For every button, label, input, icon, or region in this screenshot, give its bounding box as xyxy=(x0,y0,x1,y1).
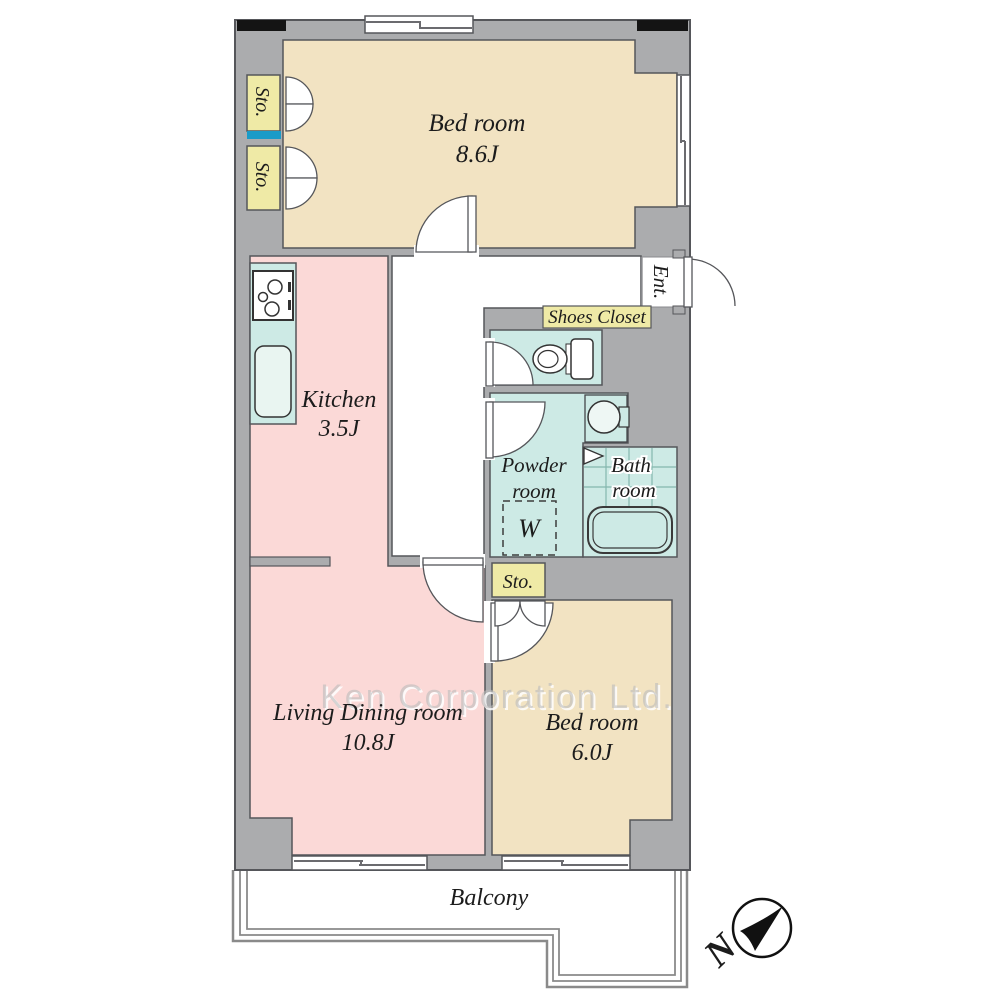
label-bedroom1-name: Bed room xyxy=(429,110,526,137)
label-powder-line1: Powder xyxy=(500,453,567,477)
label-bedroom1-size: 8.6J xyxy=(456,141,500,168)
label-entrance: Ent. xyxy=(649,264,673,299)
toilet-tank xyxy=(571,339,593,379)
compass: N xyxy=(695,899,791,976)
pillar-top-left xyxy=(237,20,286,31)
label-storage3: Sto. xyxy=(503,571,534,593)
label-storage2: Sto. xyxy=(251,162,273,193)
door-leaf-bedroom1 xyxy=(468,196,476,252)
door-leaf-entrance xyxy=(684,257,692,307)
pillar-top-right xyxy=(637,20,688,31)
stove-grill xyxy=(288,300,291,310)
stove-grill xyxy=(288,282,291,292)
sink-icon xyxy=(255,346,291,417)
entrance-jamb-bottom xyxy=(673,306,685,314)
floor-plan: Ken Corporation Ltd. Ken Corporation Ltd… xyxy=(0,0,1000,1000)
label-living-name: Living Dining room xyxy=(272,700,463,726)
floor-plan-canvas: Ken Corporation Ltd. Ken Corporation Ltd… xyxy=(0,0,1000,1000)
door-swing-entrance xyxy=(688,259,735,306)
door-leaf-toilet xyxy=(486,342,493,386)
label-bath-line2: room xyxy=(612,478,656,502)
closet-shelf-blue xyxy=(247,131,281,139)
label-kitchen-name: Kitchen xyxy=(301,387,377,413)
window-bedroom2 xyxy=(502,856,630,870)
label-storage1: Sto. xyxy=(251,87,273,118)
partition-stub xyxy=(250,557,330,566)
door-leaf-living xyxy=(423,558,483,565)
label-kitchen-size: 3.5J xyxy=(318,416,361,442)
label-living-size: 10.8J xyxy=(342,730,396,756)
label-washer: W xyxy=(518,514,542,543)
entrance-jamb-top xyxy=(673,250,685,258)
basin-icon xyxy=(588,401,620,433)
window-living xyxy=(292,856,427,870)
label-shoes-closet: Shoes Closet xyxy=(548,307,646,328)
bathtub-icon xyxy=(588,507,672,553)
label-bedroom2-size: 6.0J xyxy=(572,740,614,766)
label-powder-line2: room xyxy=(512,479,556,503)
label-balcony: Balcony xyxy=(450,885,529,911)
door-leaf-powder xyxy=(486,402,493,458)
label-bedroom2-name: Bed room xyxy=(545,710,638,736)
label-bath-line1: Bath xyxy=(611,453,651,477)
